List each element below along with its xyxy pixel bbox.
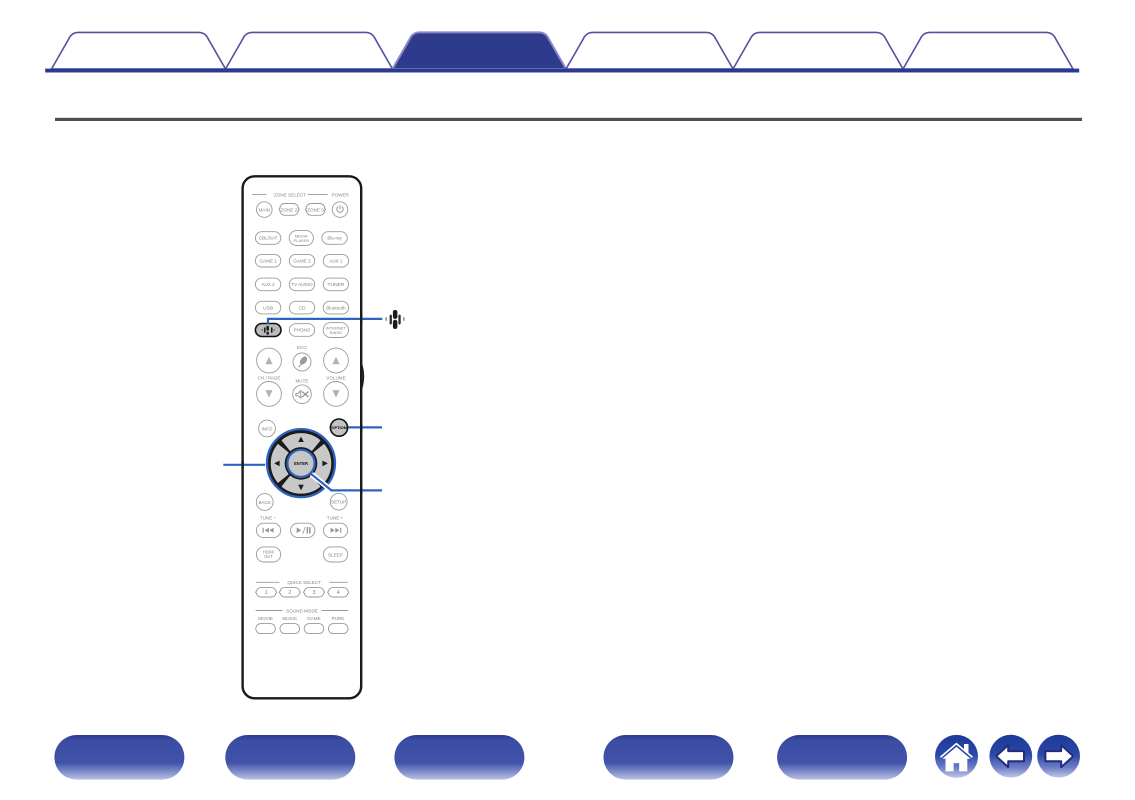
svg-text:MOVIE: MOVIE — [258, 616, 273, 621]
svg-text:MUSIC: MUSIC — [282, 616, 297, 621]
svg-text:PHONO: PHONO — [294, 328, 311, 333]
svg-text:PURE: PURE — [332, 616, 345, 621]
svg-text:SOUND MODE: SOUND MODE — [286, 608, 318, 613]
svg-text:AUX 2: AUX 2 — [261, 282, 275, 287]
svg-text:POWER: POWER — [332, 192, 350, 197]
svg-text:Bluetooth: Bluetooth — [326, 305, 346, 310]
svg-text:TUNER: TUNER — [327, 282, 344, 288]
svg-text:TUNE −: TUNE − — [260, 515, 277, 520]
svg-text:GAME 1: GAME 1 — [259, 258, 277, 263]
svg-text:BACK: BACK — [258, 500, 271, 505]
svg-text:OPTION: OPTION — [331, 425, 346, 430]
svg-text:RADIO: RADIO — [330, 330, 343, 335]
svg-text:SETUP: SETUP — [331, 500, 346, 505]
svg-text:MUTE: MUTE — [295, 378, 308, 383]
svg-text:SLEEP: SLEEP — [328, 552, 343, 557]
svg-text:ENTER: ENTER — [294, 461, 308, 466]
svg-text:TUNE +: TUNE + — [327, 515, 344, 520]
svg-text:Blu-ray: Blu-ray — [327, 236, 342, 241]
svg-text:ZONE SELECT: ZONE SELECT — [274, 192, 306, 197]
svg-text:CD: CD — [298, 305, 306, 311]
svg-text:MAIN: MAIN — [259, 207, 270, 212]
svg-text:ZONE 2: ZONE 2 — [281, 207, 298, 212]
svg-text:INFO: INFO — [262, 426, 273, 431]
svg-text:TV AUDIO: TV AUDIO — [291, 282, 313, 287]
svg-text:AUX 1: AUX 1 — [329, 258, 343, 263]
svg-text:OUT: OUT — [264, 554, 273, 559]
svg-text:ZONE 3: ZONE 3 — [307, 207, 324, 212]
svg-text:GAME 2: GAME 2 — [293, 258, 311, 263]
svg-text:VOLUME: VOLUME — [326, 375, 345, 380]
svg-text:4: 4 — [337, 590, 340, 596]
svg-text:1: 1 — [265, 590, 268, 596]
svg-text:USB: USB — [263, 305, 273, 311]
svg-text:CBL/SAT: CBL/SAT — [259, 236, 278, 241]
svg-text:3: 3 — [313, 590, 316, 596]
svg-text:2: 2 — [288, 590, 291, 596]
svg-text:CH / PAGE: CH / PAGE — [258, 375, 281, 380]
svg-text:QUICK SELECT: QUICK SELECT — [287, 580, 321, 585]
svg-text:GAME: GAME — [307, 616, 321, 621]
svg-text:ECO: ECO — [297, 345, 307, 350]
svg-text:PLAYER: PLAYER — [294, 238, 310, 243]
